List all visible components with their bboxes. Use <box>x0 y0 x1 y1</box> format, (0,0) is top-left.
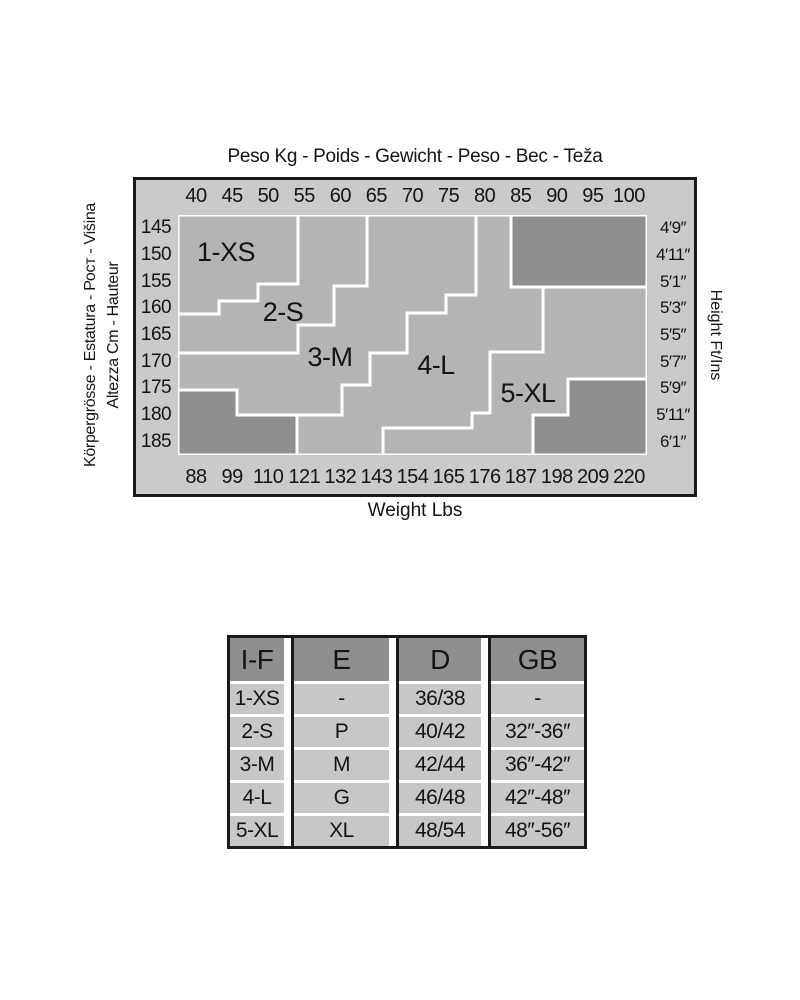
bottom-axis-label: Weight Lbs <box>133 500 697 522</box>
region-label-3-M: 3-M <box>308 342 353 372</box>
kg-tick: 65 <box>358 183 394 209</box>
ftin-tick: 4′11″ <box>649 242 697 269</box>
kg-tick: 75 <box>431 183 467 209</box>
size-chart-page: Peso Kg - Poids - Gewicht - Peso - Вес -… <box>0 0 800 1000</box>
kg-tick: 100 <box>611 183 647 209</box>
region-label-4-L: 4-L <box>417 350 455 380</box>
right-axis-label: Height Ft/Ins <box>704 255 724 415</box>
cm-tick: 150 <box>136 242 176 269</box>
kg-tick: 80 <box>467 183 503 209</box>
lbs-axis-ticks: 8899110121132143154165176187198209220 <box>178 464 647 490</box>
table-header-GB: GB <box>491 638 584 681</box>
table-column-GB: GB-32″-36″36″-42″42″-48″48″-56″ <box>488 638 584 846</box>
table-cell: 4-L <box>230 783 284 813</box>
table-cell: M <box>294 750 389 780</box>
lbs-tick: 176 <box>467 464 503 490</box>
cm-tick: 160 <box>136 295 176 322</box>
lbs-tick: 165 <box>431 464 467 490</box>
table-column-I-F: I-F1-XS2-S3-M4-L5-XL <box>230 638 284 846</box>
lbs-tick: 99 <box>214 464 250 490</box>
kg-tick: 45 <box>214 183 250 209</box>
table-cell: 48/54 <box>399 816 481 846</box>
ftin-tick: 5′11″ <box>649 402 697 429</box>
table-cell: 2-S <box>230 717 284 747</box>
cm-tick: 145 <box>136 215 176 242</box>
table-cell: - <box>294 684 389 714</box>
table-column-E: E-PMGXL <box>291 638 389 846</box>
table-cell: 40/42 <box>399 717 481 747</box>
cm-tick: 155 <box>136 268 176 295</box>
table-cell: 42/44 <box>399 750 481 780</box>
region-label-2-S: 2-S <box>263 297 304 327</box>
table-cell: 42″-48″ <box>491 783 584 813</box>
ftin-tick: 6′1″ <box>649 428 697 455</box>
lbs-tick: 187 <box>503 464 539 490</box>
table-cell: 36/38 <box>399 684 481 714</box>
kg-tick: 85 <box>503 183 539 209</box>
cm-tick: 165 <box>136 322 176 349</box>
lbs-tick: 220 <box>611 464 647 490</box>
table-cell: 5-XL <box>230 816 284 846</box>
table-cell: 36″-42″ <box>491 750 584 780</box>
lbs-tick: 110 <box>250 464 286 490</box>
region-label-1-XS: 1-XS <box>197 237 255 267</box>
table-cell: - <box>491 684 584 714</box>
table-cell: 32″-36″ <box>491 717 584 747</box>
excluded-zone-top-right <box>511 215 647 287</box>
kg-tick: 55 <box>286 183 322 209</box>
table-cell: 3-M <box>230 750 284 780</box>
region-label-5-XL: 5-XL <box>500 378 556 408</box>
table-header-E: E <box>294 638 389 681</box>
table-header-D: D <box>399 638 481 681</box>
kg-tick: 70 <box>394 183 430 209</box>
left-axis-label-inner: Altezza Cm - Hauteur <box>105 165 125 505</box>
kg-tick: 50 <box>250 183 286 209</box>
table-cell: 48″-56″ <box>491 816 584 846</box>
chart-title-weight-kg: Peso Kg - Poids - Gewicht - Peso - Вес -… <box>133 146 697 168</box>
cm-tick: 170 <box>136 348 176 375</box>
ftin-tick: 4′9″ <box>649 215 697 242</box>
lbs-tick: 198 <box>539 464 575 490</box>
kg-tick: 40 <box>178 183 214 209</box>
lbs-tick: 154 <box>394 464 430 490</box>
ftin-tick: 5′9″ <box>649 375 697 402</box>
ftin-tick: 5′5″ <box>649 322 697 349</box>
left-axis-label-outer: Körpergrösse - Estatura - Рост - Višina <box>82 165 102 505</box>
kg-tick: 60 <box>322 183 358 209</box>
kg-tick: 90 <box>539 183 575 209</box>
table-cell: G <box>294 783 389 813</box>
ftin-tick: 5′7″ <box>649 348 697 375</box>
lbs-tick: 88 <box>178 464 214 490</box>
lbs-tick: 143 <box>358 464 394 490</box>
table-column-D: D36/3840/4242/4446/4848/54 <box>396 638 481 846</box>
cm-tick: 175 <box>136 375 176 402</box>
ftin-tick: 5′1″ <box>649 268 697 295</box>
lbs-tick: 132 <box>322 464 358 490</box>
table-cell: 1-XS <box>230 684 284 714</box>
cm-tick: 180 <box>136 402 176 429</box>
table-cell: P <box>294 717 389 747</box>
ftin-tick: 5′3″ <box>649 295 697 322</box>
size-region-plot: 1-XS2-S3-M4-L5-XL <box>178 215 647 455</box>
cm-tick: 185 <box>136 428 176 455</box>
size-conversion-table: I-F1-XS2-S3-M4-L5-XLE-PMGXLD36/3840/4242… <box>227 635 587 849</box>
cm-axis-ticks: 145150155160165170175180185 <box>136 215 176 455</box>
kg-axis-ticks: 404550556065707580859095100 <box>178 183 647 209</box>
table-cell: 46/48 <box>399 783 481 813</box>
lbs-tick: 209 <box>575 464 611 490</box>
ftin-axis-ticks: 4′9″4′11″5′1″5′3″5′5″5′7″5′9″5′11″6′1″ <box>649 215 697 455</box>
table-header-I-F: I-F <box>230 638 284 681</box>
table-cell: XL <box>294 816 389 846</box>
kg-tick: 95 <box>575 183 611 209</box>
lbs-tick: 121 <box>286 464 322 490</box>
